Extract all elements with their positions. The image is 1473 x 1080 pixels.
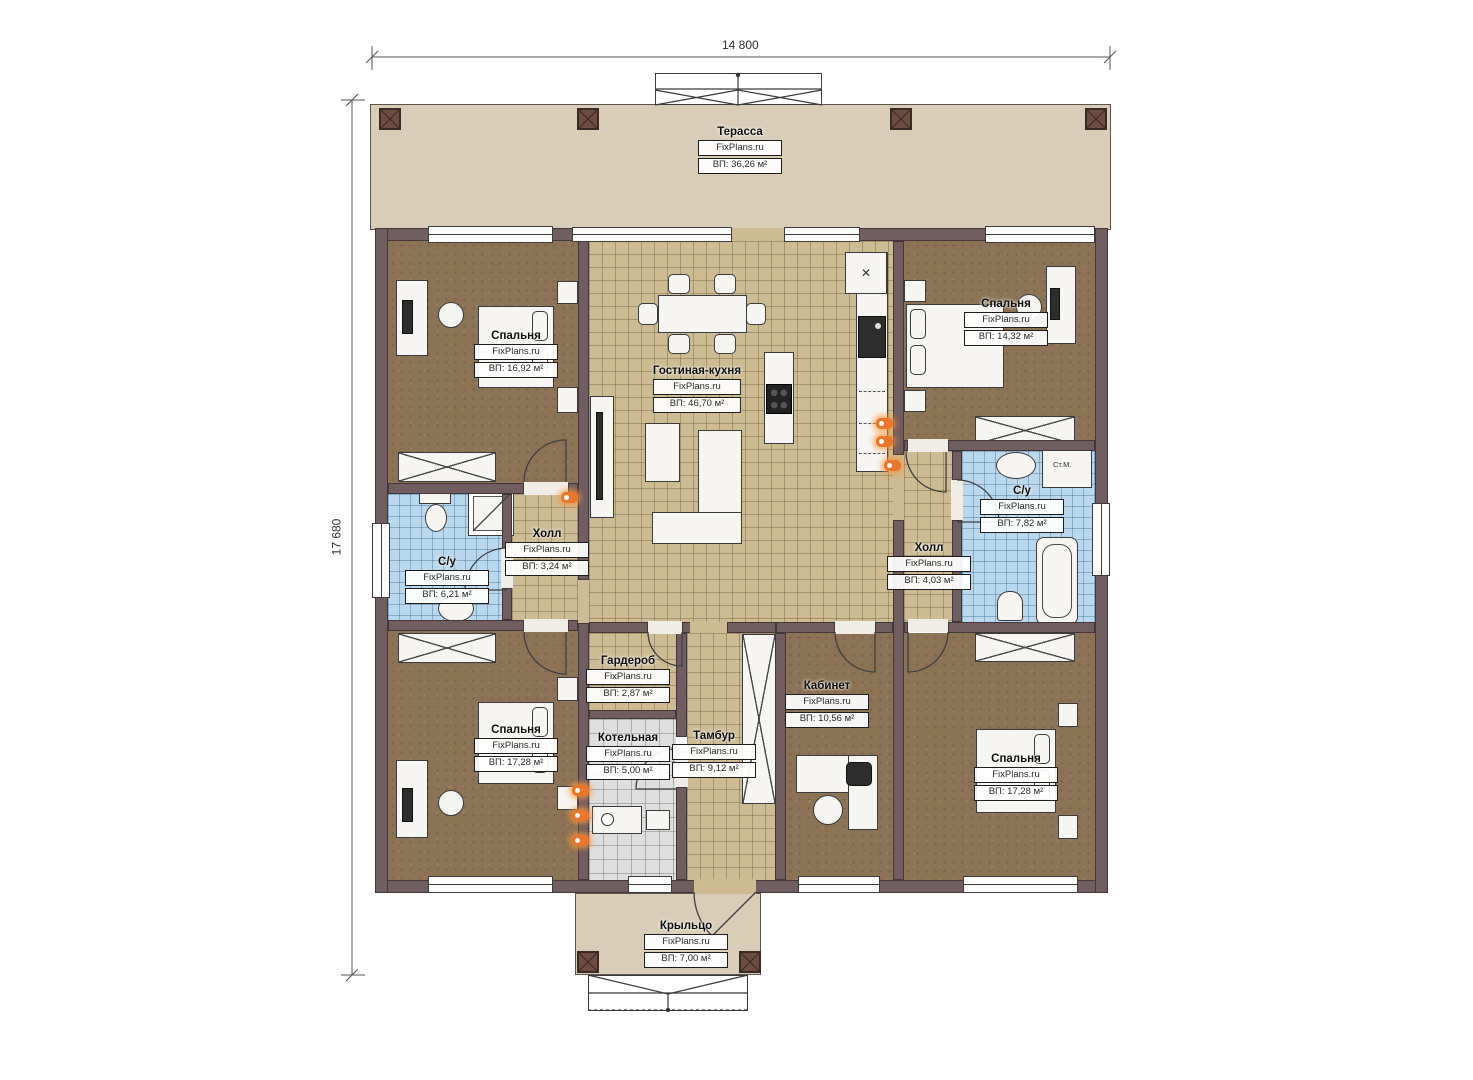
room-area: ВП: 10,56 м² (785, 712, 869, 728)
window (628, 876, 672, 893)
dining-chair (714, 334, 736, 354)
room-label-bedroom-top-right: Спальня FixPlans.ru ВП: 14,32 м² (964, 298, 1048, 346)
vent-symbol: ✕ (861, 266, 871, 280)
pillow (910, 345, 926, 375)
room-name: Холл (887, 542, 971, 554)
wall-interior (568, 620, 578, 631)
dimension-width-label: 14 800 (722, 38, 759, 52)
terrace-stairs (655, 73, 822, 105)
room-name: С/у (405, 556, 489, 568)
room-area: ВП: 3,24 м² (505, 560, 589, 576)
room-name: Спальня (474, 330, 558, 342)
wall-interior (893, 241, 904, 455)
washing-machine (1042, 450, 1092, 488)
room-name: Гардероб (586, 655, 670, 667)
terrace-glass-door (572, 227, 732, 242)
wall-interior (502, 588, 512, 620)
nightstand (1058, 703, 1078, 727)
computer-monitor (1050, 288, 1060, 320)
watermark: FixPlans.ru (505, 542, 589, 558)
hallway-wardrobe (742, 634, 776, 804)
room-area: ВП: 36,26 м² (698, 158, 782, 174)
room-name: Котельная (586, 732, 670, 744)
watermark: FixPlans.ru (653, 379, 741, 395)
dining-chair (638, 303, 658, 325)
dining-chair (714, 274, 736, 294)
room-area: ВП: 14,32 м² (964, 330, 1048, 346)
room-area: ВП: 6,21 м² (405, 588, 489, 604)
room-area: ВП: 7,82 м² (980, 517, 1064, 533)
door-opening (908, 439, 948, 452)
desk-chair (438, 790, 464, 816)
wall-interior (948, 622, 1095, 633)
wall-interior (875, 622, 893, 633)
wall-interior (775, 633, 786, 880)
window (1092, 503, 1110, 576)
room-area: ВП: 16,92 м² (474, 362, 558, 378)
nightstand (557, 281, 578, 304)
boiler-unit (592, 806, 642, 834)
entry-door-opening (694, 879, 756, 894)
porch-stairs (588, 975, 748, 1011)
room-label-hall-right: Холл FixPlans.ru ВП: 4,03 м² (887, 542, 971, 590)
room-label-bedroom-top-left: Спальня FixPlans.ru ВП: 16,92 м² (474, 330, 558, 378)
wall-interior (948, 440, 1095, 451)
vent-hood: ✕ (845, 252, 887, 294)
room-name: Тамбур (672, 730, 756, 742)
room-name: Крыльцо (644, 920, 728, 932)
window (985, 226, 1095, 243)
counter-divider (859, 391, 885, 392)
toilet-bowl (997, 591, 1023, 621)
heater-icon (561, 492, 578, 503)
computer-monitor (402, 788, 413, 822)
terrace-post (577, 108, 599, 130)
room-name: Холл (505, 528, 589, 540)
bathtub-inner (1042, 544, 1072, 618)
watermark: FixPlans.ru (474, 344, 558, 360)
room-name: Спальня (974, 753, 1058, 765)
watermark: FixPlans.ru (980, 499, 1064, 515)
watermark: FixPlans.ru (405, 570, 489, 586)
coffee-table (645, 423, 680, 482)
heater-icon (876, 436, 893, 447)
nightstand (904, 280, 926, 302)
terrace-post (1085, 108, 1107, 130)
door-opening (908, 619, 948, 632)
window (963, 876, 1078, 893)
room-label-vestibule: Тамбур FixPlans.ru ВП: 9,12 м² (672, 730, 756, 778)
room-area: ВП: 9,12 м² (672, 762, 756, 778)
door-opening (648, 621, 682, 634)
heater-icon (572, 835, 589, 846)
wardrobe-cabinet (398, 452, 496, 482)
window (428, 226, 553, 243)
room-name: Спальня (964, 298, 1048, 310)
sink (996, 452, 1036, 479)
room-name: Терасса (698, 126, 782, 138)
room-area: ВП: 7,00 м² (644, 952, 728, 968)
watermark: FixPlans.ru (964, 312, 1048, 328)
watermark: FixPlans.ru (586, 669, 670, 685)
room-label-living-kitchen: Гостиная-кухня FixPlans.ru ВП: 46,70 м² (653, 365, 741, 413)
bathtub (1036, 537, 1078, 625)
room-area: ВП: 4,03 м² (887, 574, 971, 590)
porch-post (739, 951, 761, 973)
wall-interior (676, 633, 687, 737)
room-label-porch: Крыльцо FixPlans.ru ВП: 7,00 м² (644, 920, 728, 968)
tv-screen (596, 412, 603, 500)
room-label-bedroom-bottom-left: Спальня FixPlans.ru ВП: 17,28 м² (474, 724, 558, 772)
watermark: FixPlans.ru (672, 744, 756, 760)
room-area: ВП: 17,28 м² (474, 756, 558, 772)
heater-icon (876, 418, 893, 429)
window (428, 876, 553, 893)
watermark: FixPlans.ru (586, 746, 670, 762)
watermark: FixPlans.ru (698, 140, 782, 156)
dining-chair (668, 274, 690, 294)
computer-monitor (402, 300, 413, 334)
passage-opening (578, 580, 589, 623)
room-area: ВП: 17,28 м² (974, 785, 1058, 801)
room-area: ВП: 46,70 м² (653, 397, 741, 413)
room-label-office: Кабинет FixPlans.ru ВП: 10,56 м² (785, 680, 869, 728)
terrace-post (890, 108, 912, 130)
wall-interior (589, 710, 676, 719)
room-label-hall-left: Холл FixPlans.ru ВП: 3,24 м² (505, 528, 589, 576)
wall-interior (776, 622, 835, 633)
terrace-post (379, 108, 401, 130)
boiler-dial (601, 813, 614, 826)
office-chair (846, 762, 872, 786)
wall-interior (589, 622, 648, 633)
dining-table (658, 295, 747, 333)
wall-interior (727, 622, 776, 633)
room-area: ВП: 5,00 м² (586, 764, 670, 780)
door-opening (524, 619, 568, 632)
dining-chair (746, 303, 766, 325)
pillow (910, 309, 926, 339)
room-name: Гостиная-кухня (653, 365, 741, 377)
nightstand (1058, 815, 1078, 839)
watermark: FixPlans.ru (474, 738, 558, 754)
stool (813, 795, 843, 825)
floor-hall-right (904, 451, 952, 622)
toilet-tank (419, 493, 451, 504)
watermark: FixPlans.ru (974, 767, 1058, 783)
watermark: FixPlans.ru (887, 556, 971, 572)
room-name: Кабинет (785, 680, 869, 692)
window (798, 876, 880, 893)
nightstand (557, 677, 578, 701)
toilet-bowl (425, 504, 447, 532)
heater-icon (572, 785, 589, 796)
nightstand (557, 387, 578, 413)
room-label-terrace: Терасса FixPlans.ru ВП: 36,26 м² (698, 126, 782, 174)
watermark: FixPlans.ru (785, 694, 869, 710)
wall-interior (676, 787, 687, 880)
room-label-bathroom-left: С/у FixPlans.ru ВП: 6,21 м² (405, 556, 489, 604)
room-label-bedroom-bottom-right: Спальня FixPlans.ru ВП: 17,28 м² (974, 753, 1058, 801)
terrace-glass-door (784, 227, 860, 242)
wall-interior (952, 451, 962, 480)
passage-opening (690, 622, 727, 633)
wall-interior (388, 483, 524, 494)
room-label-bathroom-right: С/у FixPlans.ru ВП: 7,82 м² (980, 485, 1064, 533)
wardrobe-cabinet (975, 633, 1075, 662)
door-opening (951, 480, 963, 520)
watermark: FixPlans.ru (644, 934, 728, 950)
heater-icon (884, 460, 901, 471)
room-area: ВП: 2,87 м² (586, 687, 670, 703)
room-label-boiler-room: Котельная FixPlans.ru ВП: 5,00 м² (586, 732, 670, 780)
boiler-side-unit (646, 810, 670, 830)
porch-post (577, 951, 599, 973)
window (372, 523, 390, 598)
heater-icon (572, 810, 589, 821)
door-opening (835, 621, 875, 634)
wardrobe-cabinet (398, 633, 496, 663)
kitchen-sink-stove (858, 316, 886, 358)
washing-machine-label: Ст.М. (1053, 460, 1071, 469)
terrace-door-opening (732, 228, 784, 241)
dining-chair (668, 334, 690, 354)
room-name: Спальня (474, 724, 558, 736)
room-name: С/у (980, 485, 1064, 497)
sink-drain (875, 323, 881, 329)
floor-plan-canvas: 14 800 17 680 (0, 0, 1473, 1080)
nightstand (904, 390, 926, 412)
cooktop (766, 384, 792, 414)
wall-interior (388, 620, 524, 631)
counter-divider (859, 453, 885, 454)
desk-chair (438, 302, 464, 328)
room-label-wardrobe-room: Гардероб FixPlans.ru ВП: 2,87 м² (586, 655, 670, 703)
sofa-chaise (652, 512, 742, 544)
dimension-height-label: 17 680 (329, 519, 343, 556)
